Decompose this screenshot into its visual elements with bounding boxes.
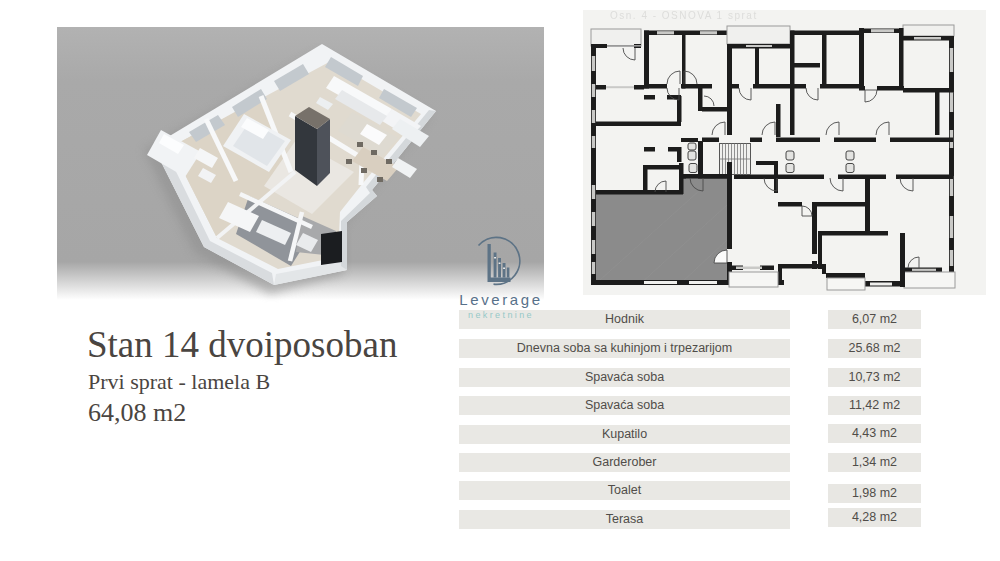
svg-text:Osn. 4 - OSNOVA 1 sprat: Osn. 4 - OSNOVA 1 sprat xyxy=(610,10,758,21)
